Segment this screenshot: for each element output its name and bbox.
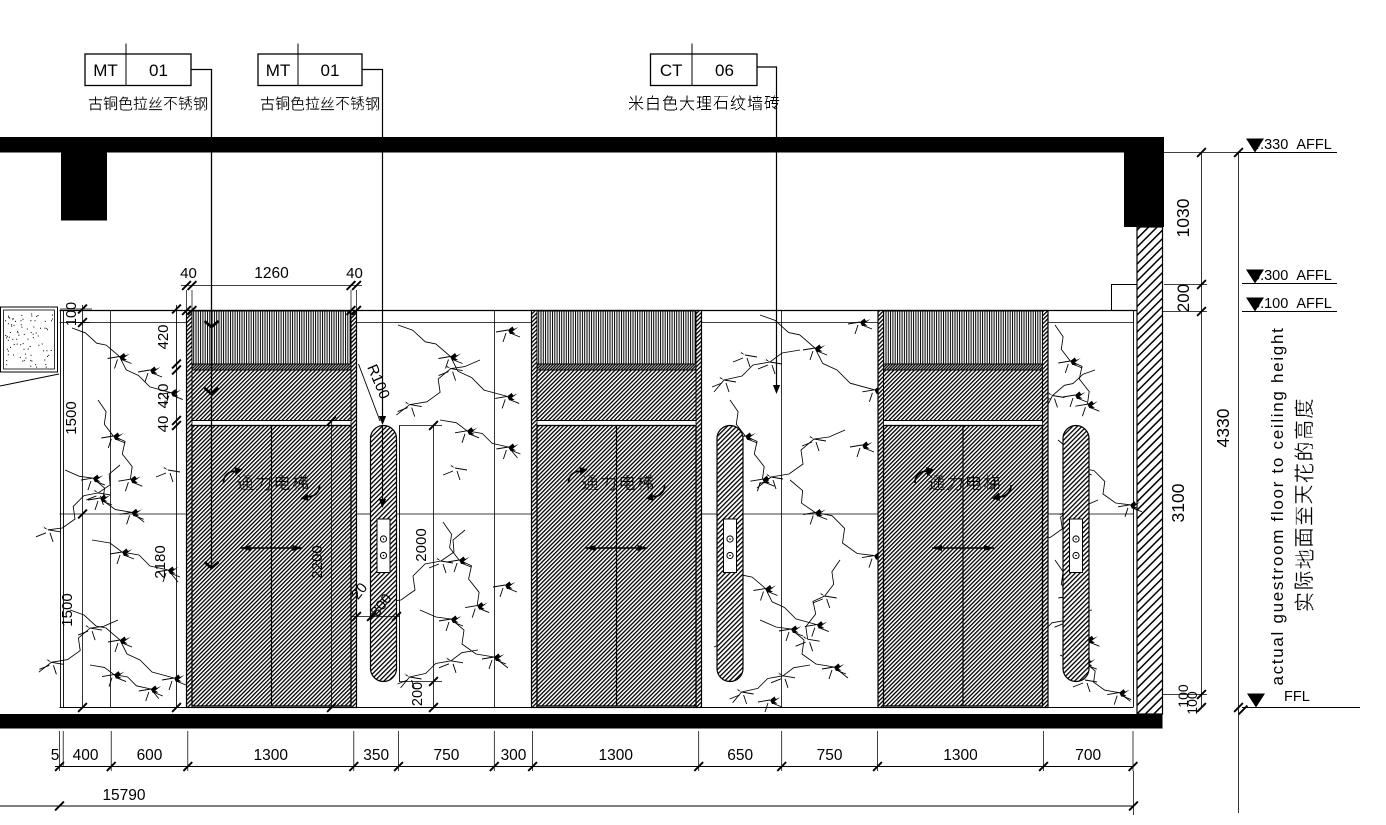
svg-text:2000: 2000 [413, 528, 430, 561]
svg-text:06: 06 [715, 61, 734, 80]
svg-text:400: 400 [73, 747, 99, 764]
svg-text:100: 100 [1184, 691, 1200, 715]
svg-text:3.100 AFFL: 3.100 AFFL [1252, 296, 1332, 312]
svg-text:4330: 4330 [1213, 408, 1233, 447]
svg-text:1030: 1030 [1173, 198, 1193, 237]
svg-text:2200: 2200 [309, 545, 326, 578]
svg-text:420: 420 [155, 383, 172, 408]
svg-text:15790: 15790 [102, 787, 145, 804]
svg-text:3100: 3100 [1168, 483, 1188, 522]
svg-text:650: 650 [727, 747, 753, 764]
svg-text:750: 750 [817, 747, 843, 764]
svg-text:300: 300 [501, 747, 527, 764]
svg-text:700: 700 [1075, 747, 1101, 764]
svg-text:200: 200 [410, 682, 426, 706]
svg-text:01: 01 [321, 61, 340, 80]
svg-text:1500: 1500 [63, 401, 80, 434]
svg-text:1260: 1260 [254, 265, 289, 282]
svg-text:4.330 AFFL: 4.330 AFFL [1252, 137, 1332, 153]
svg-text:40: 40 [155, 416, 172, 433]
svg-text:2180: 2180 [152, 545, 169, 578]
svg-text:01: 01 [149, 61, 168, 80]
svg-text:MT: MT [266, 61, 291, 80]
svg-text:420: 420 [155, 324, 172, 349]
svg-text:1300: 1300 [254, 747, 289, 764]
svg-text:1500: 1500 [59, 593, 76, 626]
svg-text:40: 40 [180, 265, 197, 282]
svg-text:1300: 1300 [943, 747, 978, 764]
svg-text:750: 750 [433, 747, 459, 764]
svg-text:3.300 AFFL: 3.300 AFFL [1252, 268, 1332, 284]
svg-text:FFL: FFL [1284, 689, 1310, 705]
svg-text:600: 600 [137, 747, 163, 764]
svg-text:5: 5 [51, 747, 60, 764]
svg-text:actual guestroom floor to ceil: actual guestroom floor to ceiling height [1268, 326, 1287, 685]
svg-text:40: 40 [346, 265, 363, 282]
svg-text:CT: CT [660, 61, 683, 80]
svg-text:MT: MT [93, 61, 118, 80]
svg-text:200: 200 [1174, 284, 1193, 312]
svg-text:350: 350 [363, 747, 389, 764]
svg-text:1300: 1300 [598, 747, 633, 764]
svg-text:100: 100 [64, 302, 80, 326]
